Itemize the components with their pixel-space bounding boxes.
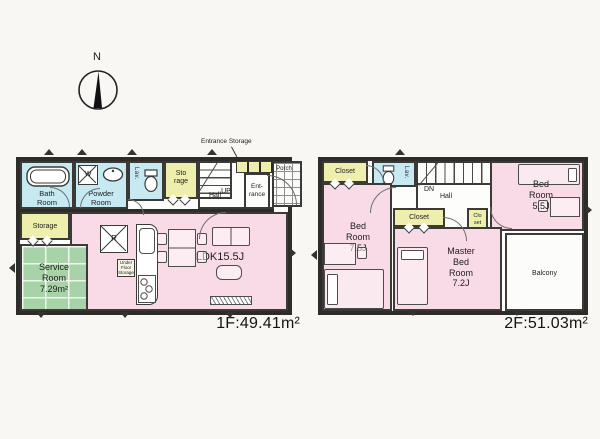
toilet-1f-door-arc (128, 199, 144, 215)
toilet-icon (143, 169, 159, 193)
closet-small-label: Clo set (469, 213, 486, 226)
service-room-label: Service Room 7.29m² (22, 262, 86, 294)
toilet-1f-label: Lav. (132, 167, 139, 180)
window-marker (311, 250, 317, 260)
bed-icon (324, 269, 384, 309)
stairs-down (416, 161, 492, 185)
window-marker (127, 149, 137, 155)
toilet-2f-label: Lav. (402, 166, 409, 179)
kitchen-sink-icon (139, 228, 155, 254)
bed-room-55-label: Bed Room 5.5J (508, 179, 574, 211)
compass-icon (76, 64, 120, 114)
closet-northwest-label: Closet (324, 168, 366, 176)
hall-1f-label: Hall (202, 192, 228, 200)
storage-top: Sto rage (164, 161, 198, 199)
window-marker (77, 149, 87, 155)
under-floor-storage-label: Under Floor Storage (118, 261, 134, 276)
refrigerator-label: R (101, 234, 127, 243)
hall-2f-label: Hall (432, 193, 460, 201)
window-marker (9, 263, 15, 273)
floor2-area-label: 2F:51.03m² (478, 315, 588, 333)
refrigerator-icon: R (100, 225, 128, 253)
window-marker (44, 149, 54, 155)
stove-icon (138, 275, 156, 303)
floorplan-canvas: N Entrance Storage Porch Ent- rance UP H… (0, 0, 600, 439)
stairs-down-diagonal (419, 162, 439, 186)
entrance-storage-cabinet (236, 161, 274, 173)
dining-table (168, 229, 196, 267)
compass-north-label: N (84, 51, 110, 64)
desk-icon (324, 243, 356, 265)
pillow-icon (401, 250, 424, 260)
chair-icon (357, 247, 367, 259)
dining-chair (157, 251, 167, 263)
storage-left-label: Storage (22, 223, 68, 231)
window-marker (225, 312, 235, 318)
closet-middle: Closet (393, 208, 445, 227)
balcony: Balcony (505, 233, 584, 311)
window-marker (408, 310, 418, 316)
closet-middle-label: Closet (395, 214, 443, 222)
dining-chair (157, 233, 167, 245)
floor1-plan: Porch Ent- rance UP Hall Bath Room W (16, 157, 292, 315)
window-marker (120, 312, 130, 318)
window-marker (512, 310, 522, 316)
window-marker (207, 149, 217, 155)
entrance-storage-note: Entrance Storage (201, 138, 252, 145)
storage-top-label: Sto rage (166, 170, 196, 187)
master-bed-room-label: Master Bed Room 7.2J (429, 246, 493, 289)
window-marker (395, 149, 405, 155)
sink-icon (102, 167, 124, 182)
pillow-icon (327, 274, 338, 305)
service-room: Service Room 7.29m² (20, 244, 88, 311)
closet-northwest: Closet (322, 161, 368, 183)
coffee-table (216, 265, 242, 280)
entrance-label: Ent- rance (246, 183, 268, 199)
window-marker (586, 205, 592, 215)
dining-chair (197, 251, 207, 263)
washer-label: W (79, 171, 97, 178)
washer-icon: W (78, 165, 98, 185)
bed-icon (397, 247, 428, 305)
window-marker (36, 312, 46, 318)
window-marker (290, 248, 296, 258)
balcony-label: Balcony (507, 270, 582, 278)
bathtub-icon (26, 166, 70, 187)
tv-board (210, 296, 252, 305)
floor1-area-label: 1F:49.41m² (190, 315, 300, 333)
toilet-1f: Lav. (128, 161, 164, 201)
floor2-plan: DN Hall Closet Lav. Bed Room 5.5J Bed Ro… (318, 157, 588, 315)
under-floor-storage: Under Floor Storage (117, 259, 135, 277)
